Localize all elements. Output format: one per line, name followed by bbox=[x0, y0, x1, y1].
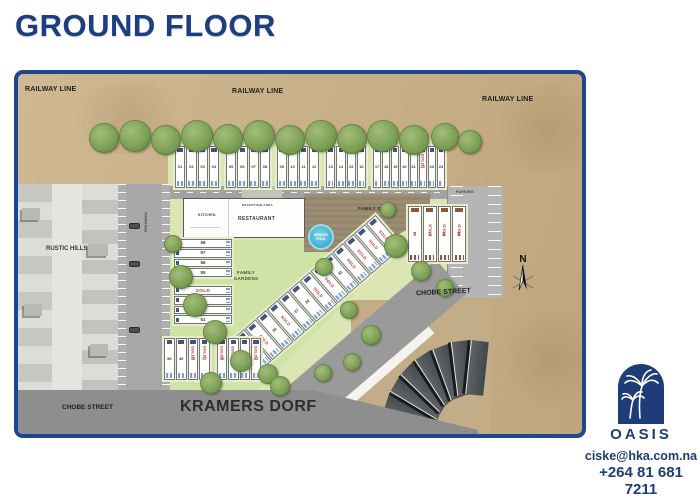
unit-block-25-28: 28SOLD27SOLD26SOLD25 bbox=[406, 204, 468, 264]
unit-13: 13 bbox=[326, 146, 335, 188]
unit-block-43-46: SOLD46SOLD4544SOLD43 bbox=[215, 336, 263, 382]
unit-06: 06 bbox=[237, 146, 247, 188]
unit-27: SOLD27 bbox=[423, 206, 437, 262]
unit-48: SOLD48 bbox=[188, 338, 199, 380]
unit-18: 18 bbox=[382, 146, 390, 188]
road-dashes bbox=[122, 192, 447, 193]
unit-47: SOLD47 bbox=[199, 338, 210, 380]
page-title: GROUND FLOOR bbox=[15, 8, 276, 44]
heated-pool: HEATED POOL bbox=[308, 224, 334, 250]
unit-55: 55 bbox=[174, 268, 232, 277]
unit-24: 24 bbox=[437, 146, 445, 188]
railway-line-label-center: RAILWAY LINE bbox=[232, 88, 283, 95]
unit-19: 19 bbox=[391, 146, 399, 188]
contact-email: ciske@hka.com.na bbox=[582, 449, 700, 463]
unit-11: 11 bbox=[299, 146, 309, 188]
unit-block-17-24: 1718192021SOLD222324 bbox=[371, 144, 447, 190]
family-deck-label: FAMILY DECK bbox=[358, 206, 391, 211]
unit-17: 17 bbox=[373, 146, 381, 188]
oasis-logo bbox=[618, 364, 664, 424]
unit-50: 50 bbox=[164, 338, 175, 380]
unit-45: SOLD45 bbox=[228, 338, 238, 380]
room-divider bbox=[228, 199, 229, 239]
car bbox=[130, 328, 139, 332]
palm-tree-icon bbox=[618, 364, 664, 424]
unit-28: 28 bbox=[408, 206, 422, 262]
tree bbox=[458, 130, 482, 154]
heated-pool-label: HEATED POOL bbox=[310, 233, 332, 241]
unit-53: 53 bbox=[174, 296, 232, 305]
unit-54: SOLD bbox=[174, 286, 232, 295]
unit-22: SOLD22 bbox=[419, 146, 427, 188]
unit-21: 21 bbox=[410, 146, 418, 188]
parking-stalls bbox=[118, 184, 126, 390]
parking-stalls bbox=[488, 186, 501, 298]
oasis-wordmark: OASIS bbox=[582, 426, 700, 443]
unit-20: 20 bbox=[400, 146, 408, 188]
unit-49: 49 bbox=[176, 338, 187, 380]
kramers-dorf-label: KRAMERS DORF bbox=[180, 398, 317, 416]
unit-02: 02 bbox=[186, 146, 196, 188]
unit-05: 05 bbox=[226, 146, 236, 188]
unit-14: 14 bbox=[336, 146, 345, 188]
room-divider bbox=[190, 227, 220, 228]
unit-15: 15 bbox=[347, 146, 356, 188]
unit-block-09-12: 09101112 bbox=[275, 144, 321, 190]
restaurant-label: RESTAURANT bbox=[238, 216, 275, 222]
unit-51: 51 bbox=[174, 315, 232, 324]
unit-04: 04 bbox=[209, 146, 219, 188]
north-compass: N bbox=[510, 252, 536, 294]
unit-57: 57 bbox=[174, 249, 232, 258]
unit-23: 23 bbox=[428, 146, 436, 188]
unit-block-55-58: 58575655 bbox=[172, 237, 234, 279]
brand-block: OASIS ciske@hka.com.na +264 81 681 7211 bbox=[582, 364, 700, 498]
photo-building bbox=[24, 304, 42, 316]
roof bbox=[466, 341, 490, 397]
rustic-hills-label: RUSTIC HILLS bbox=[46, 246, 87, 252]
unit-58: 58 bbox=[174, 239, 232, 248]
unit-46: SOLD46 bbox=[217, 338, 227, 380]
unit-block-47-50: 5049SOLD48SOLD47 bbox=[162, 336, 212, 382]
chobe-street-label-south: CHOBE STREET bbox=[62, 404, 113, 411]
unit-block-05-08: 05060708 bbox=[224, 144, 272, 190]
site-plan-panel: KITCHEN RECEPTION AREA RESTAURANT FAMILY… bbox=[14, 70, 586, 438]
unit-56: 56 bbox=[174, 259, 232, 268]
sand-patch bbox=[498, 304, 586, 414]
unit-52: 52 bbox=[174, 306, 232, 315]
unit-12: 12 bbox=[309, 146, 319, 188]
compass-n-label: N bbox=[519, 254, 526, 265]
unit-01: 01 bbox=[175, 146, 185, 188]
unit-block-13-16: 13141516 bbox=[324, 144, 368, 190]
unit-10: 10 bbox=[288, 146, 298, 188]
unit-25: SOLD25 bbox=[452, 206, 466, 262]
railway-line-label-west: RAILWAY LINE bbox=[25, 86, 76, 93]
kitchen-label: KITCHEN bbox=[198, 213, 216, 217]
unit-26: SOLD26 bbox=[438, 206, 452, 262]
car bbox=[130, 262, 139, 266]
unit-43: SOLD43 bbox=[251, 338, 261, 380]
reception-label: RECEPTION AREA bbox=[242, 203, 273, 207]
photo-building bbox=[22, 208, 40, 220]
parking-label-east: PARKING bbox=[456, 190, 474, 194]
unit-08: 08 bbox=[260, 146, 270, 188]
parking-label-west: PARKING bbox=[144, 212, 149, 232]
clubhouse-building: KITCHEN RECEPTION AREA RESTAURANT bbox=[183, 198, 305, 238]
photo-building bbox=[90, 344, 108, 356]
unit-block-51-54: SOLD535251 bbox=[172, 284, 234, 326]
unit-block-01-04: 01020304 bbox=[173, 144, 221, 190]
unit-03: 03 bbox=[198, 146, 208, 188]
unit-09: 09 bbox=[277, 146, 287, 188]
railway-line-label-east: RAILWAY LINE bbox=[482, 96, 533, 103]
unit-44: 44 bbox=[240, 338, 250, 380]
contact-phone: +264 81 681 7211 bbox=[582, 464, 700, 498]
unit-07: 07 bbox=[249, 146, 259, 188]
car bbox=[130, 224, 139, 228]
unit-16: 16 bbox=[357, 146, 366, 188]
photo-building bbox=[88, 244, 108, 256]
